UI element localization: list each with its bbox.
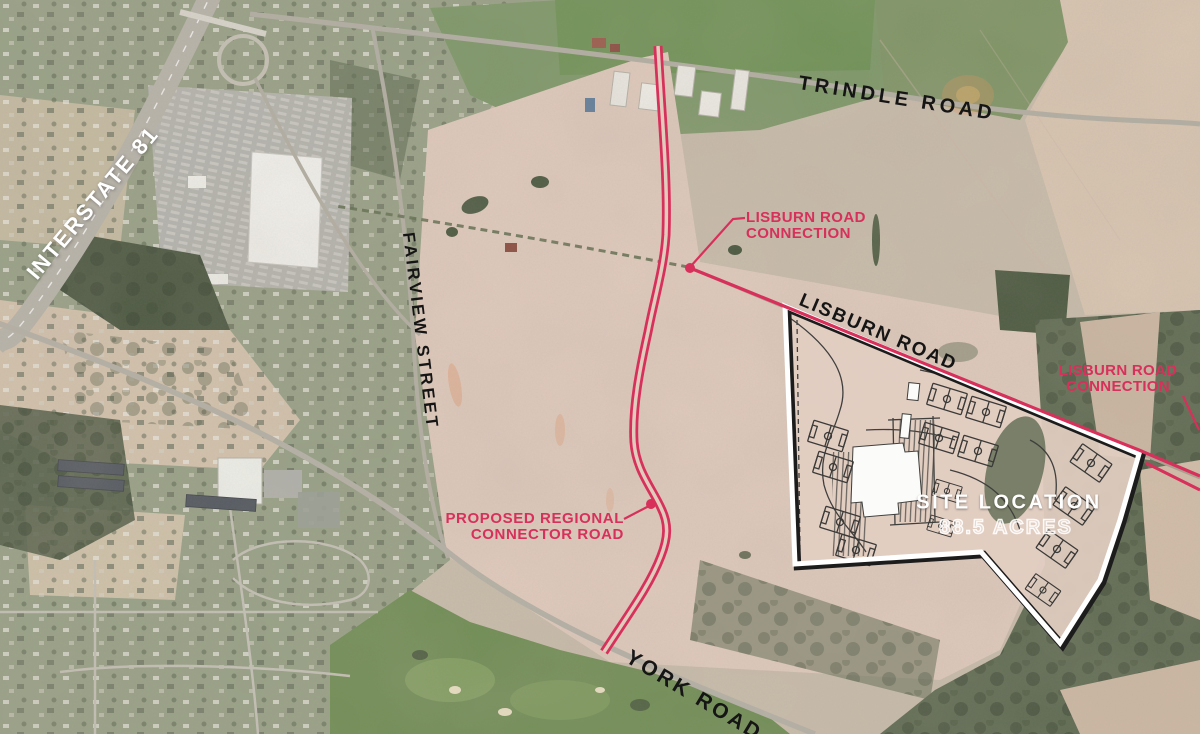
callout-line2: CONNECTION (1048, 379, 1188, 395)
site-location-label: SITE LOCATION (916, 492, 1101, 515)
callout-line1: LISBURN ROAD (746, 210, 866, 226)
callout-line1: LISBURN ROAD (1048, 363, 1188, 379)
callout-line2: CONNECTOR ROAD (437, 527, 624, 543)
lisburn-connection-callout-east: LISBURN ROAD CONNECTION (1048, 363, 1188, 394)
aerial-basemap (0, 0, 1200, 734)
site-acreage-label: 88.5 ACRES (939, 517, 1073, 540)
callout-line1: PROPOSED REGIONAL (437, 511, 624, 527)
aerial-site-map: INTERSTATE 81 TRINDLE ROAD FAIRVIEW STRE… (0, 0, 1200, 734)
callout-line2: CONNECTION (746, 226, 866, 242)
proposed-connector-callout: PROPOSED REGIONAL CONNECTOR ROAD (437, 511, 624, 542)
connection-dot-connector (646, 499, 656, 509)
grain-texture (0, 0, 1200, 734)
lisburn-connection-callout-center: LISBURN ROAD CONNECTION (746, 210, 866, 241)
connection-dot-lisburn (685, 263, 695, 273)
